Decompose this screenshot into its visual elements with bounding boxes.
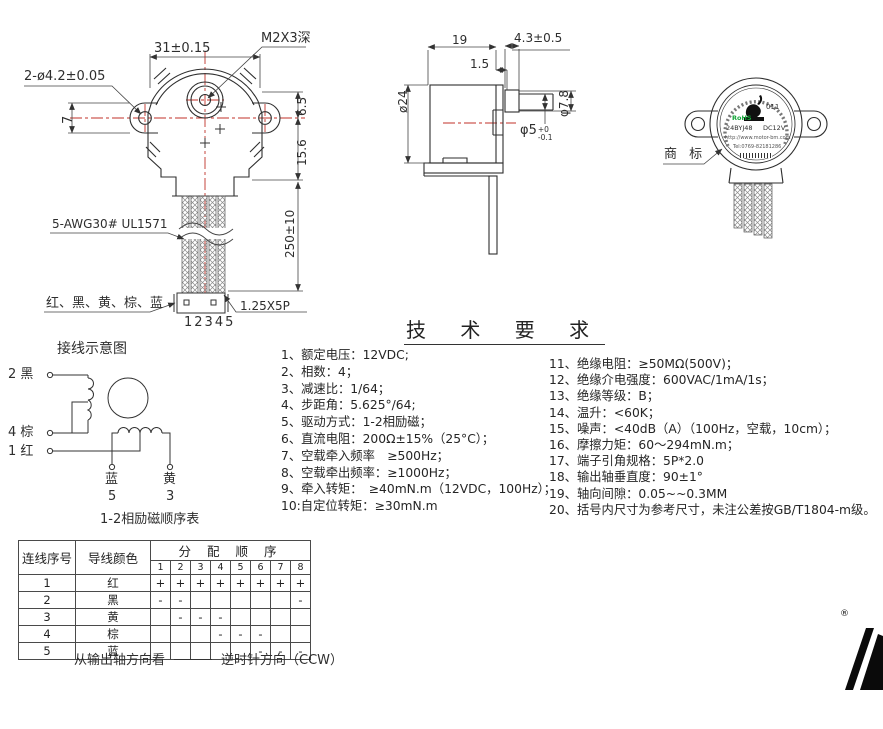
tech-item: 4、步距角：5.625°/64; — [281, 397, 556, 414]
label-model: 24BYJ48 — [726, 125, 753, 132]
tech-item: 7、空载牵入频率 ≥500Hz； — [281, 448, 556, 465]
cell-wire-color: 棕 — [76, 626, 151, 643]
cell-step-polarity — [191, 592, 211, 609]
cell-step-polarity: + — [211, 575, 231, 592]
brand-logo — [845, 628, 883, 690]
tech-requirements-title: 技 术 要 求 — [404, 320, 605, 345]
cell-wire-number: 5 — [19, 643, 76, 660]
header-step: 7 — [271, 561, 291, 575]
cell-step-polarity: - — [171, 609, 191, 626]
ccw-note: 从输出轴方向看逆时针方向（CCW） — [74, 654, 343, 667]
terminal-4-brown: 4 棕 — [8, 426, 33, 439]
rear-wires — [734, 184, 772, 238]
cell-step-polarity: - — [151, 592, 171, 609]
tech-item: 12、绝缘介电强度：600VAC/1mA/1s； — [549, 372, 876, 388]
wire-spec-label: 5-AWG30# UL1571 — [52, 218, 168, 230]
cell-step-polarity — [191, 626, 211, 643]
cell-step-polarity: + — [191, 575, 211, 592]
dim-6-5: 6.5 — [296, 97, 308, 116]
dim-body-diameter: ø24 — [397, 90, 409, 113]
cell-step-polarity: - — [291, 592, 311, 609]
dim-shaft-length: 4.3±0.5 — [514, 32, 562, 44]
cell-step-polarity — [151, 609, 171, 626]
cell-step-polarity — [291, 626, 311, 643]
cell-step-polarity: + — [251, 575, 271, 592]
label-logo-text: 011 — [766, 104, 779, 111]
cell-step-polarity: - — [191, 609, 211, 626]
cell-step-polarity — [251, 609, 271, 626]
dim-collar-diameter: φ7.8 — [558, 90, 570, 117]
terminal-yellow: 黄 — [163, 473, 176, 486]
cell-wire-color: 红 — [76, 575, 151, 592]
label-voltage: DC12V — [763, 125, 785, 132]
tech-item: 10:自定位转矩：≥30mN.m — [281, 498, 556, 515]
cell-wire-color: 黄 — [76, 609, 151, 626]
tech-item: 9、牵入转矩： ≥40mN.m（12VDC，100Hz）； — [281, 481, 556, 498]
tech-item: 3、减速比：1/64； — [281, 381, 556, 398]
wiring-schematic — [47, 372, 172, 469]
cell-step-polarity: - — [211, 626, 231, 643]
table-row: 2黑--- — [19, 592, 311, 609]
ccw-dash — [174, 659, 212, 660]
cell-step-polarity — [271, 626, 291, 643]
header-step: 6 — [251, 561, 271, 575]
label-barcode — [740, 153, 772, 158]
cell-step-polarity: - — [231, 626, 251, 643]
pin-numbers-label: 12345 — [184, 316, 235, 329]
dim-hole-spacing: 31±0.15 — [154, 42, 210, 55]
dim-screw-depth: M2X3深 — [261, 32, 311, 45]
cell-step-polarity — [211, 592, 231, 609]
terminal-2-black: 2 黑 — [8, 368, 33, 381]
header-wire-color: 导线颜色 — [76, 541, 151, 575]
cell-step-polarity — [171, 626, 191, 643]
cell-step-polarity — [271, 592, 291, 609]
front-wires — [179, 196, 235, 293]
tech-item: 2、相数：4； — [281, 364, 556, 381]
trademark-callout: 商 标 — [664, 148, 706, 161]
tech-item: 1、额定电压：12VDC; — [281, 347, 556, 364]
table-row: 4棕--- — [19, 626, 311, 643]
cell-step-polarity: + — [151, 575, 171, 592]
cell-step-polarity: + — [231, 575, 251, 592]
tech-list-left: 1、额定电压：12VDC;2、相数：4；3、减速比：1/64；4、步距角：5.6… — [281, 347, 556, 515]
header-step: 4 — [211, 561, 231, 575]
connector-spec-label: 1.25X5P — [240, 300, 290, 312]
tech-item: 11、绝缘电阻：≥50MΩ(500V)； — [549, 356, 876, 372]
dim-15-6: 15.6 — [296, 139, 308, 166]
cell-step-polarity — [231, 609, 251, 626]
label-url: http://www.motor-bm.com — [725, 136, 791, 141]
cell-step-polarity: - — [251, 626, 271, 643]
dim-mount-holes: 2-ø4.2±0.05 — [24, 70, 105, 83]
cell-step-polarity — [271, 609, 291, 626]
terminal-blue: 蓝 — [105, 473, 118, 486]
tech-item: 6、直流电阻：200Ω±15%（25°C）； — [281, 431, 556, 448]
cell-step-polarity: - — [171, 592, 191, 609]
front-dimensions — [24, 47, 307, 312]
rear-view-body — [685, 78, 827, 183]
cell-step-polarity — [291, 609, 311, 626]
cell-step-polarity: + — [171, 575, 191, 592]
tech-item: 18、输出轴垂直度：90±1° — [549, 469, 876, 485]
tech-item: 16、摩擦力矩：60～294mN.m； — [549, 437, 876, 453]
label-rohs: RoHS — [732, 115, 752, 122]
front-connector — [174, 293, 228, 313]
ccw-note-pre: 从输出轴方向看 — [74, 653, 165, 668]
drawing-sheet: 2-ø4.2±0.05 31±0.15 M2X3深 7 6.5 15.6 250… — [0, 0, 883, 729]
header-wire-number: 连线序号 — [19, 541, 76, 575]
shaft-tol-minus: -0.1 — [538, 134, 553, 142]
sequence-table-caption: 1-2相励磁顺序表 — [100, 513, 199, 526]
tech-item: 17、端子引角规格：5P*2.0 — [549, 453, 876, 469]
excitation-sequence-table: 连线序号导线颜色分 配 顺 序123456781红++++++++2黑---3黄… — [18, 540, 311, 660]
tech-item: 13、绝缘等级：B； — [549, 388, 876, 404]
tech-item: 19、轴向间隙：0.05~~0.3MM — [549, 486, 876, 502]
header-step: 5 — [231, 561, 251, 575]
dim-ear-offset: 7 — [62, 116, 75, 124]
tech-list-right: 11、绝缘电阻：≥50MΩ(500V)；12、绝缘介电强度：600VAC/1mA… — [549, 356, 876, 518]
cell-step-polarity — [251, 592, 271, 609]
front-plus-marks — [200, 102, 226, 148]
dim-wire-length: 250±10 — [284, 210, 296, 258]
side-view-body — [424, 85, 553, 254]
header-sequence: 分 配 顺 序 — [151, 541, 311, 561]
wire-colors-label: 红、黑、黄、棕、蓝 — [46, 297, 163, 310]
cell-step-polarity — [151, 626, 171, 643]
header-step: 2 — [171, 561, 191, 575]
registered-mark: ® — [840, 609, 849, 619]
cell-step-polarity: + — [291, 575, 311, 592]
tech-item: 14、温升：<60K； — [549, 405, 876, 421]
terminal-pin3: 3 — [166, 490, 174, 503]
cell-wire-number: 1 — [19, 575, 76, 592]
cell-wire-number: 2 — [19, 592, 76, 609]
table-row: 3黄--- — [19, 609, 311, 626]
wiring-diagram-title: 接线示意图 — [57, 342, 127, 356]
terminal-1-red: 1 红 — [8, 445, 33, 458]
label-tel: Tel:0769-82181286 — [733, 145, 781, 150]
cell-wire-number: 4 — [19, 626, 76, 643]
tech-item: 15、噪声：<40dB（A）（100Hz，空载，10cm）； — [549, 421, 876, 437]
header-step: 1 — [151, 561, 171, 575]
cell-wire-color: 黑 — [76, 592, 151, 609]
dim-step: 1.5 — [470, 58, 489, 70]
cell-step-polarity: - — [211, 609, 231, 626]
shaft-dia-value: φ5 — [520, 123, 537, 138]
cell-step-polarity — [231, 592, 251, 609]
tech-item: 5、驱动方式：1-2相励磁； — [281, 414, 556, 431]
terminal-pin5: 5 — [108, 490, 116, 503]
ccw-note-post: 逆时针方向（CCW） — [221, 653, 343, 668]
tech-item: 20、括号内尺寸为参考尺寸，未注公差按GB/T1804-m级。 — [549, 502, 876, 518]
tech-item: 8、空载牵出频率：≥1000Hz； — [281, 465, 556, 482]
dim-body-length: 19 — [452, 34, 467, 46]
table-row: 1红++++++++ — [19, 575, 311, 592]
header-step: 3 — [191, 561, 211, 575]
header-step: 8 — [291, 561, 311, 575]
dim-shaft-diameter: φ5+0-0.1 — [520, 124, 553, 141]
cell-step-polarity: + — [271, 575, 291, 592]
cell-wire-number: 3 — [19, 609, 76, 626]
